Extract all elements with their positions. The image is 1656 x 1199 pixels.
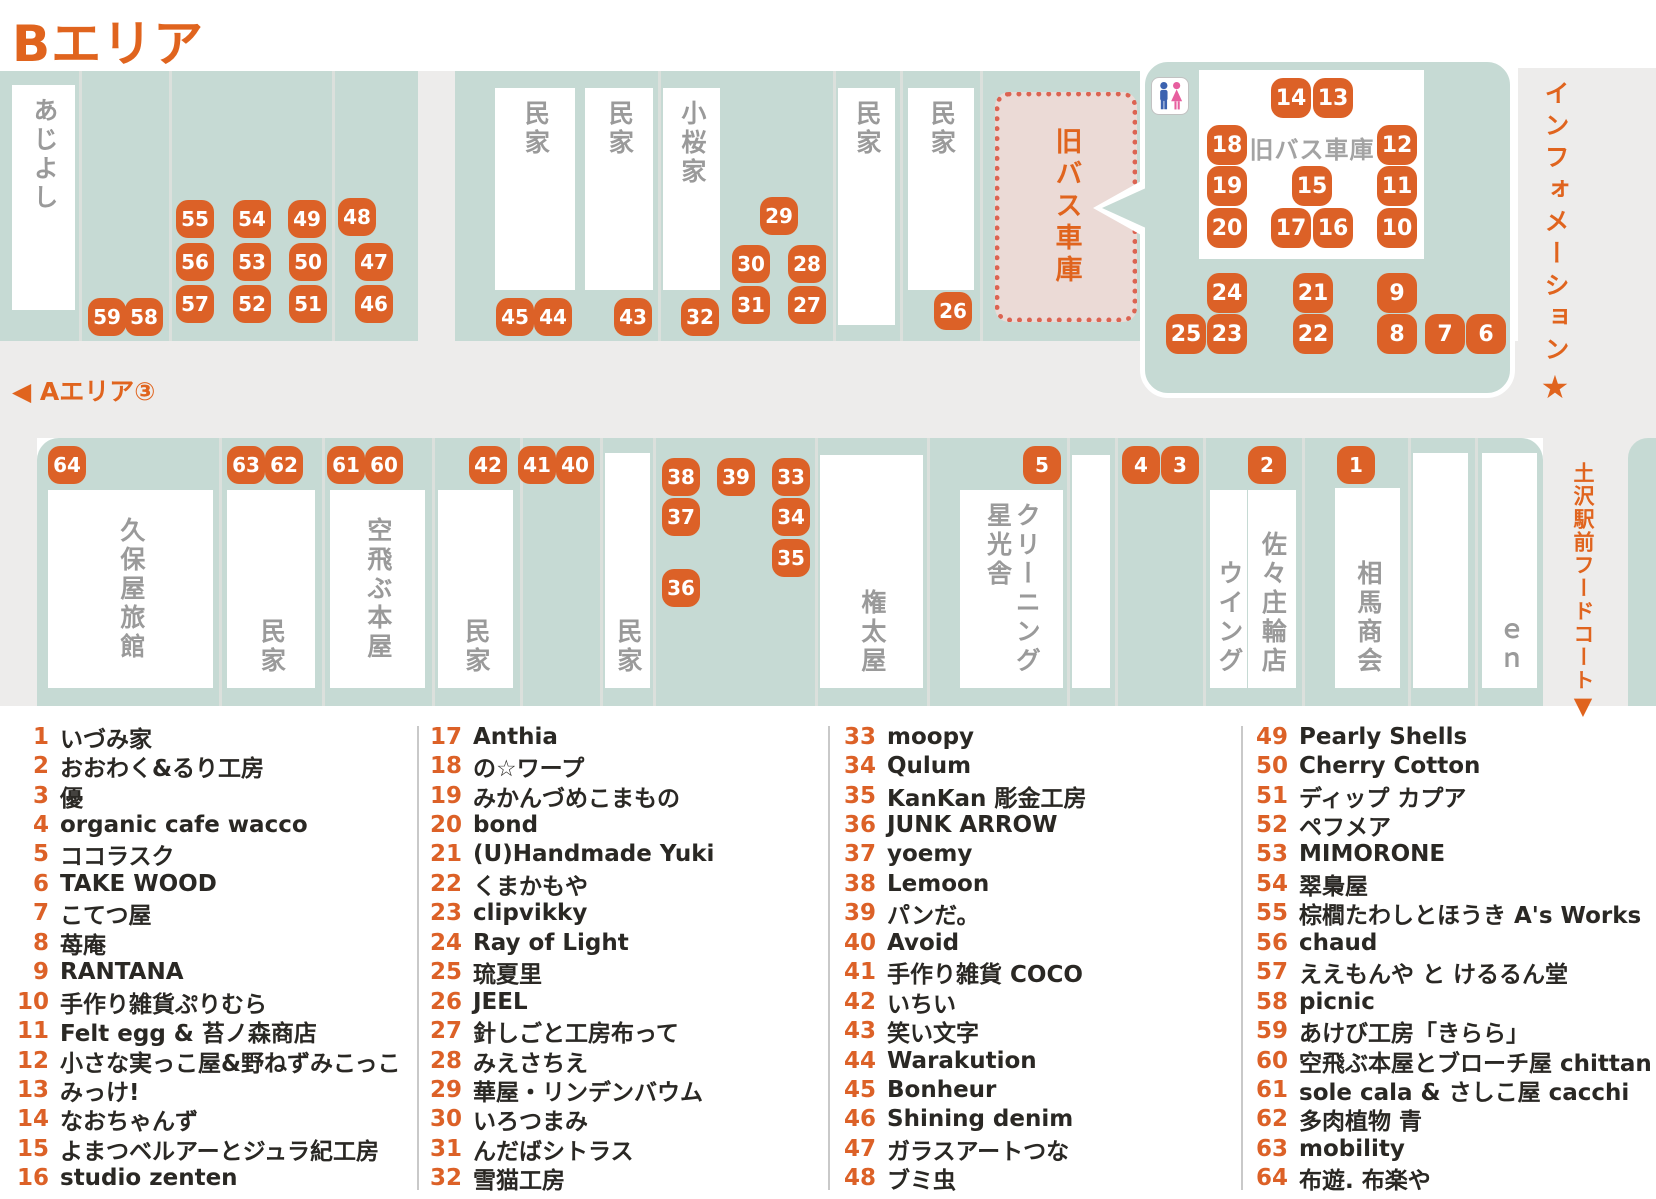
legend-entry: 10手作り雑貨ぷりむら xyxy=(7,987,400,1016)
legend-entry-number: 14 xyxy=(7,1106,49,1132)
legend-entry-number: 61 xyxy=(1246,1077,1288,1103)
legend-entry-name: Avoid xyxy=(887,930,959,956)
legend-entry-name: moopy xyxy=(887,724,974,750)
legend-entry: 61sole cala & さしこ屋 cacchi xyxy=(1246,1075,1652,1104)
legend-entry-name: Anthia xyxy=(473,724,558,750)
legend-entry: 41手作り雑貨 COCO xyxy=(834,958,1086,987)
legend-entry: 34Qulum xyxy=(834,751,1086,780)
legend-entry-name: Lemoon xyxy=(887,871,989,897)
legend-column-1: 1いづみ家2おおわく&るり工房3優4organic cafe wacco5ココラ… xyxy=(7,722,400,1193)
legend-entry: 31んだばシトラス xyxy=(420,1134,714,1163)
legend-entry-number: 31 xyxy=(420,1136,462,1162)
legend-entry: 39パンだ。 xyxy=(834,899,1086,928)
legend-entry: 56chaud xyxy=(1246,928,1652,957)
legend-entry-number: 51 xyxy=(1246,783,1288,809)
legend-column-4: 49Pearly Shells50Cherry Cotton51ディップ カプア… xyxy=(1246,722,1652,1193)
legend-entry-number: 60 xyxy=(1246,1048,1288,1074)
legend-entry: 58picnic xyxy=(1246,987,1652,1016)
legend-entry: 16studio zenten xyxy=(7,1164,400,1193)
legend-entry: 11Felt egg & 苔ノ森商店 xyxy=(7,1016,400,1045)
legend-entry-number: 62 xyxy=(1246,1106,1288,1132)
legend-entry-number: 22 xyxy=(420,871,462,897)
legend-entry: 18の☆ワープ xyxy=(420,751,714,780)
legend-entry: 63mobility xyxy=(1246,1134,1652,1163)
legend-entry: 37yoemy xyxy=(834,840,1086,869)
legend-entry: 5ココラスク xyxy=(7,840,400,869)
legend-entry-number: 34 xyxy=(834,753,876,779)
legend-entry: 24Ray of Light xyxy=(420,928,714,957)
legend-entry-name: Shining denim xyxy=(887,1106,1073,1132)
legend-entry-number: 21 xyxy=(420,841,462,867)
legend-entry-number: 27 xyxy=(420,1018,462,1044)
legend-entry-number: 49 xyxy=(1246,724,1288,750)
legend-entry-number: 59 xyxy=(1246,1018,1288,1044)
legend-entry: 22くまかもや xyxy=(420,869,714,898)
legend-column-divider xyxy=(417,726,419,1190)
legend-column-3: 33moopy34Qulum35KanKan 彫金工房36JUNK ARROW3… xyxy=(834,722,1086,1193)
legend-entry-number: 9 xyxy=(7,959,49,985)
legend-entry: 35KanKan 彫金工房 xyxy=(834,781,1086,810)
legend-entry-name: RANTANA xyxy=(60,959,184,985)
legend-entry: 55棕櫚たわしとほうき A's Works xyxy=(1246,899,1652,928)
legend-entry-number: 2 xyxy=(7,753,49,779)
legend-entry-number: 58 xyxy=(1246,989,1288,1015)
legend-entry-name: ペフメア xyxy=(1299,808,1391,842)
legend-entry: 46Shining denim xyxy=(834,1105,1086,1134)
legend-entry-number: 19 xyxy=(420,783,462,809)
legend-entry-name: ええもんや と けるるん堂 xyxy=(1299,955,1568,989)
legend-entry: 42いちい xyxy=(834,987,1086,1016)
legend-entry: 19みかんづめこまもの xyxy=(420,781,714,810)
legend-entry-number: 25 xyxy=(420,959,462,985)
legend-entry: 30いろつまみ xyxy=(420,1105,714,1134)
legend-entry: 21(U)Handmade Yuki xyxy=(420,840,714,869)
legend-entry-number: 56 xyxy=(1246,930,1288,956)
legend-entry: 3優 xyxy=(7,781,400,810)
legend-entry-name: mobility xyxy=(1299,1136,1405,1162)
legend-entry-name: 雪猫工房 xyxy=(473,1161,565,1195)
legend-entry: 17Anthia xyxy=(420,722,714,751)
legend-entry: 29華屋・リンデンバウム xyxy=(420,1075,714,1104)
legend-entry-name: studio zenten xyxy=(60,1165,238,1191)
legend-entry-name: Pearly Shells xyxy=(1299,724,1467,750)
legend-entry-number: 42 xyxy=(834,989,876,1015)
legend-entry-name: chaud xyxy=(1299,930,1377,956)
legend-entry-number: 5 xyxy=(7,841,49,867)
legend-entry-name: TAKE WOOD xyxy=(60,871,217,897)
legend-entry: 54翠梟屋 xyxy=(1246,869,1652,898)
legend-entry: 60空飛ぶ本屋とブローチ屋 chittan xyxy=(1246,1046,1652,1075)
legend-entry-number: 48 xyxy=(834,1165,876,1191)
legend-entry: 32雪猫工房 xyxy=(420,1164,714,1193)
legend-entry: 53MIMORONE xyxy=(1246,840,1652,869)
legend-entry-number: 1 xyxy=(7,724,49,750)
legend-entry-number: 26 xyxy=(420,989,462,1015)
legend-entry: 8苺庵 xyxy=(7,928,400,957)
legend-entry: 15よまつベルアーとジュラ紀工房 xyxy=(7,1134,400,1163)
legend-entry-name: Ray of Light xyxy=(473,930,629,956)
legend-entry-number: 6 xyxy=(7,871,49,897)
legend-entry-number: 8 xyxy=(7,930,49,956)
legend-entry-name: 棕櫚たわしとほうき A's Works xyxy=(1299,896,1641,930)
legend-entry: 43笑い文字 xyxy=(834,1016,1086,1045)
legend-entry: 28みえさちえ xyxy=(420,1046,714,1075)
legend-entry-name: MIMORONE xyxy=(1299,841,1445,867)
legend-entry: 33moopy xyxy=(834,722,1086,751)
legend-entry: 64布遊. 布楽や xyxy=(1246,1164,1652,1193)
legend-entry-number: 18 xyxy=(420,753,462,779)
legend-entry-number: 55 xyxy=(1246,900,1288,926)
legend-entry-name: おおわく&るり工房 xyxy=(60,749,264,783)
legend-entry: 51ディップ カプア xyxy=(1246,781,1652,810)
legend-entry-name: Qulum xyxy=(887,753,971,779)
legend-entry-number: 43 xyxy=(834,1018,876,1044)
legend-entry: 49Pearly Shells xyxy=(1246,722,1652,751)
legend-entry: 13みっけ! xyxy=(7,1075,400,1104)
legend-entry: 7こてつ屋 xyxy=(7,899,400,928)
legend-entry-number: 57 xyxy=(1246,959,1288,985)
legend-entry-number: 36 xyxy=(834,812,876,838)
legend-entry-name: (U)Handmade Yuki xyxy=(473,841,714,867)
legend-entry-number: 29 xyxy=(420,1077,462,1103)
legend-entry-number: 7 xyxy=(7,900,49,926)
legend-entry: 57ええもんや と けるるん堂 xyxy=(1246,958,1652,987)
legend-entry: 14なおちゃんず xyxy=(7,1105,400,1134)
legend-entry-number: 33 xyxy=(834,724,876,750)
legend-entry-name: 多肉植物 青 xyxy=(1299,1102,1422,1136)
legend-entry: 27針しごと工房布って xyxy=(420,1016,714,1045)
legend-entry-number: 30 xyxy=(420,1106,462,1132)
legend-entry-number: 15 xyxy=(7,1136,49,1162)
legend-column-2: 17Anthia18の☆ワープ19みかんづめこまもの20bond21(U)Han… xyxy=(420,722,714,1193)
legend-entry-number: 38 xyxy=(834,871,876,897)
legend-entry-number: 10 xyxy=(7,989,49,1015)
legend-entry-number: 64 xyxy=(1246,1165,1288,1191)
legend-column-divider xyxy=(1241,726,1243,1190)
legend-entry: 25琉夏里 xyxy=(420,958,714,987)
legend-entry-number: 53 xyxy=(1246,841,1288,867)
legend-entry: 6TAKE WOOD xyxy=(7,869,400,898)
legend-entry: 47ガラスアートつな xyxy=(834,1134,1086,1163)
legend-entry-name: Warakution xyxy=(887,1048,1037,1074)
legend: 1いづみ家2おおわく&るり工房3優4organic cafe wacco5ココラ… xyxy=(0,0,1656,1199)
legend-entry-name: Bonheur xyxy=(887,1077,996,1103)
legend-entry-number: 16 xyxy=(7,1165,49,1191)
legend-entry: 26JEEL xyxy=(420,987,714,1016)
legend-entry-number: 37 xyxy=(834,841,876,867)
legend-entry: 50Cherry Cotton xyxy=(1246,751,1652,780)
legend-entry-name: Cherry Cotton xyxy=(1299,753,1480,779)
legend-entry-name: organic cafe wacco xyxy=(60,812,308,838)
legend-entry: 1いづみ家 xyxy=(7,722,400,751)
legend-entry: 23clipvikky xyxy=(420,899,714,928)
legend-entry-name: 笑い文字 xyxy=(887,1014,979,1048)
legend-entry-name: パンだ。 xyxy=(887,896,979,930)
legend-entry: 45Bonheur xyxy=(834,1075,1086,1104)
legend-entry: 52ペフメア xyxy=(1246,810,1652,839)
legend-entry-number: 54 xyxy=(1246,871,1288,897)
legend-entry: 12小さな実っこ屋&野ねずみこっこ xyxy=(7,1046,400,1075)
legend-entry-number: 63 xyxy=(1246,1136,1288,1162)
legend-entry: 59あけび工房「きらら」 xyxy=(1246,1016,1652,1045)
legend-entry-number: 40 xyxy=(834,930,876,956)
legend-entry-number: 32 xyxy=(420,1165,462,1191)
legend-entry-number: 12 xyxy=(7,1048,49,1074)
legend-entry-name: bond xyxy=(473,812,538,838)
legend-entry-name: 優 xyxy=(60,779,83,813)
legend-entry-name: ココラスク xyxy=(60,837,175,871)
legend-entry-number: 47 xyxy=(834,1136,876,1162)
legend-entry-name: よまつベルアーとジュラ紀工房 xyxy=(60,1132,379,1166)
legend-entry-name: ブミ虫 xyxy=(887,1161,956,1195)
legend-entry-number: 24 xyxy=(420,930,462,956)
legend-entry: 38Lemoon xyxy=(834,869,1086,898)
legend-entry: 36JUNK ARROW xyxy=(834,810,1086,839)
legend-entry: 62多肉植物 青 xyxy=(1246,1105,1652,1134)
legend-entry: 20bond xyxy=(420,810,714,839)
legend-column-divider xyxy=(828,726,830,1190)
legend-entry-number: 52 xyxy=(1246,812,1288,838)
b-area-map-poster: Bエリア あじよし民家民家小桜家民家民家久保屋旅館民家空飛ぶ本屋民家民家権太屋ク… xyxy=(0,0,1656,1199)
legend-entry: 48ブミ虫 xyxy=(834,1164,1086,1193)
legend-entry-number: 23 xyxy=(420,900,462,926)
legend-entry-name: yoemy xyxy=(887,841,972,867)
legend-entry-number: 11 xyxy=(7,1018,49,1044)
legend-entry-number: 39 xyxy=(834,900,876,926)
legend-entry-name: 琉夏里 xyxy=(473,955,542,989)
legend-entry-number: 46 xyxy=(834,1106,876,1132)
legend-entry-number: 4 xyxy=(7,812,49,838)
legend-entry-name: JUNK ARROW xyxy=(887,812,1057,838)
legend-entry: 40Avoid xyxy=(834,928,1086,957)
legend-entry-name: KanKan 彫金工房 xyxy=(887,779,1086,813)
legend-entry-name: 苺庵 xyxy=(60,926,106,960)
legend-entry-number: 20 xyxy=(420,812,462,838)
legend-entry-number: 35 xyxy=(834,783,876,809)
legend-entry-name: JEEL xyxy=(473,989,528,1015)
legend-entry-number: 3 xyxy=(7,783,49,809)
legend-entry-name: くまかもや xyxy=(473,867,588,901)
legend-entry-number: 41 xyxy=(834,959,876,985)
legend-entry-name: 布遊. 布楽や xyxy=(1299,1161,1431,1195)
legend-entry: 2おおわく&るり工房 xyxy=(7,751,400,780)
legend-entry-name: picnic xyxy=(1299,989,1375,1015)
legend-entry: 9RANTANA xyxy=(7,958,400,987)
legend-entry-name: clipvikky xyxy=(473,900,587,926)
legend-entry-number: 44 xyxy=(834,1048,876,1074)
legend-entry-number: 17 xyxy=(420,724,462,750)
legend-entry-number: 45 xyxy=(834,1077,876,1103)
legend-entry-number: 50 xyxy=(1246,753,1288,779)
legend-entry-number: 13 xyxy=(7,1077,49,1103)
legend-entry: 44Warakution xyxy=(834,1046,1086,1075)
legend-entry: 4organic cafe wacco xyxy=(7,810,400,839)
legend-entry-name: みかんづめこまもの xyxy=(473,779,680,813)
legend-entry-number: 28 xyxy=(420,1048,462,1074)
